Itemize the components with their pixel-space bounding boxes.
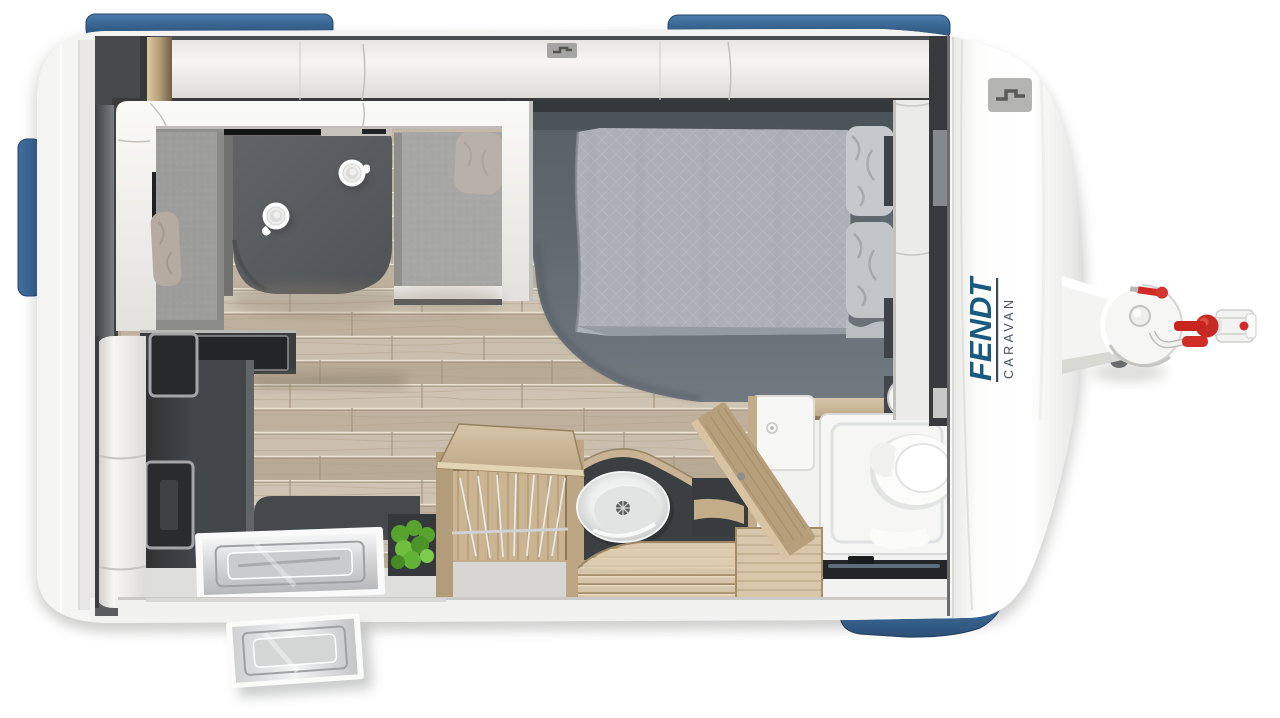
svg-text:FENDT: FENDT	[963, 275, 998, 381]
svg-text:CARAVAN: CARAVAN	[1002, 297, 1016, 379]
